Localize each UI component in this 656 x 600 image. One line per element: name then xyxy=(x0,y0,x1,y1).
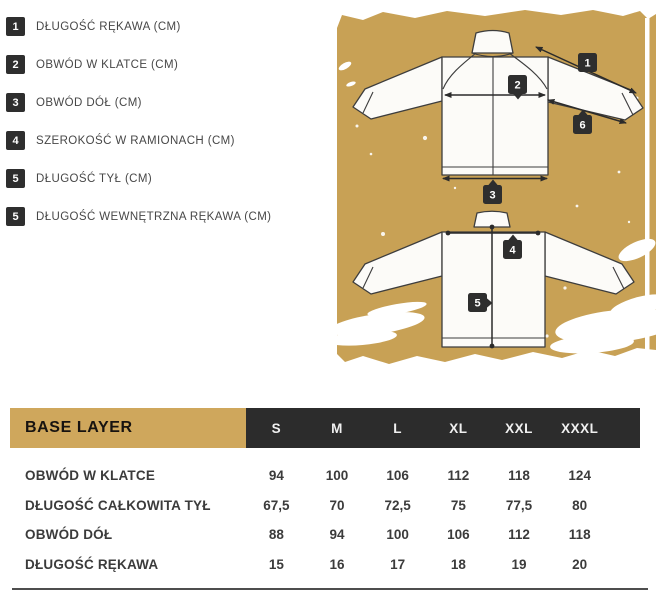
size-header-s: S xyxy=(246,421,307,436)
svg-text:5: 5 xyxy=(474,298,480,310)
legend-number-badge: 5 xyxy=(6,169,25,188)
legend-item-sleeve-length: 1 DŁUGOŚĆ RĘKAWA (CM) xyxy=(6,17,271,36)
cell-value: 77,5 xyxy=(489,498,550,513)
cell-value: 16 xyxy=(307,557,368,572)
grunge-scratch-line xyxy=(645,18,650,356)
legend-item-label: OBWÓD W KLATCE (CM) xyxy=(36,59,178,71)
cell-value: 15 xyxy=(246,557,307,572)
table-row-sleeve-length: DŁUGOŚĆ RĘKAWA 15 16 17 18 19 20 xyxy=(10,550,640,580)
legend-item-chest: 2 OBWÓD W KLATCE (CM) xyxy=(6,55,271,74)
size-header-xxl: XXL xyxy=(489,421,550,436)
cell-value: 118 xyxy=(549,527,610,542)
size-header-l: L xyxy=(367,421,428,436)
row-label: OBWÓD W KLATCE xyxy=(10,468,246,483)
legend-item-label: DŁUGOŚĆ TYŁ (CM) xyxy=(36,173,152,185)
cell-value: 70 xyxy=(307,498,368,513)
cell-value: 88 xyxy=(246,527,307,542)
cell-value: 17 xyxy=(367,557,428,572)
cell-value: 75 xyxy=(428,498,489,513)
legend-item-label: OBWÓD DÓŁ (CM) xyxy=(36,97,142,109)
legend-item-label: DŁUGOŚĆ WEWNĘTRZNA RĘKAWA (CM) xyxy=(36,211,271,223)
size-header-m: M xyxy=(307,421,368,436)
cell-value: 19 xyxy=(489,557,550,572)
size-table-title: BASE LAYER xyxy=(10,408,246,448)
size-header-xxxl: XXXL xyxy=(549,421,610,436)
cell-value: 124 xyxy=(549,468,610,483)
svg-text:4: 4 xyxy=(509,245,516,257)
cell-value: 94 xyxy=(246,468,307,483)
jacket-measurement-diagram: 1 2 6 3 xyxy=(337,6,656,372)
cell-value: 100 xyxy=(307,468,368,483)
row-label: DŁUGOŚĆ CAŁKOWITA TYŁ xyxy=(10,498,246,513)
cell-value: 112 xyxy=(428,468,489,483)
legend-number-badge: 5 xyxy=(6,207,25,226)
legend-item-label: SZEROKOŚĆ W RAMIONACH (CM) xyxy=(36,135,235,147)
table-bottom-divider xyxy=(12,588,648,590)
cell-value: 67,5 xyxy=(246,498,307,513)
size-table: BASE LAYER S M L XL XXL XXXL OBWÓD W KLA… xyxy=(10,408,640,579)
svg-text:1: 1 xyxy=(584,58,590,70)
cell-value: 18 xyxy=(428,557,489,572)
cell-value: 72,5 xyxy=(367,498,428,513)
size-header-xl: XL xyxy=(428,421,489,436)
legend-item-shoulder-width: 4 SZEROKOŚĆ W RAMIONACH (CM) xyxy=(6,131,271,150)
svg-text:6: 6 xyxy=(579,120,585,132)
svg-text:3: 3 xyxy=(489,190,495,202)
row-label: OBWÓD DÓŁ xyxy=(10,527,246,542)
cell-value: 106 xyxy=(428,527,489,542)
size-table-header: BASE LAYER S M L XL XXL XXXL xyxy=(10,408,640,448)
legend-item-label: DŁUGOŚĆ RĘKAWA (CM) xyxy=(36,21,181,33)
svg-text:2: 2 xyxy=(514,80,520,92)
legend-item-inner-sleeve: 5 DŁUGOŚĆ WEWNĘTRZNA RĘKAWA (CM) xyxy=(6,207,271,226)
size-column-headers: S M L XL XXL XXXL xyxy=(246,408,640,448)
size-table-body: OBWÓD W KLATCE 94 100 106 112 118 124 DŁ… xyxy=(10,448,640,579)
legend-number-badge: 2 xyxy=(6,55,25,74)
cell-value: 106 xyxy=(367,468,428,483)
cell-value: 20 xyxy=(549,557,610,572)
row-label: DŁUGOŚĆ RĘKAWA xyxy=(10,557,246,572)
table-row-total-back-length: DŁUGOŚĆ CAŁKOWITA TYŁ 67,5 70 72,5 75 77… xyxy=(10,491,640,521)
legend-item-bottom: 3 OBWÓD DÓŁ (CM) xyxy=(6,93,271,112)
cell-value: 112 xyxy=(489,527,550,542)
cell-value: 118 xyxy=(489,468,550,483)
legend-number-badge: 3 xyxy=(6,93,25,112)
legend-item-back-length: 5 DŁUGOŚĆ TYŁ (CM) xyxy=(6,169,271,188)
table-row-chest: OBWÓD W KLATCE 94 100 106 112 118 124 xyxy=(10,461,640,491)
cell-value: 80 xyxy=(549,498,610,513)
legend-number-badge: 4 xyxy=(6,131,25,150)
cell-value: 100 xyxy=(367,527,428,542)
marker-sleeve-length: 1 xyxy=(578,53,597,72)
measurement-legend: 1 DŁUGOŚĆ RĘKAWA (CM) 2 OBWÓD W KLATCE (… xyxy=(6,17,271,226)
legend-number-badge: 1 xyxy=(6,17,25,36)
cell-value: 94 xyxy=(307,527,368,542)
table-row-bottom: OBWÓD DÓŁ 88 94 100 106 112 118 xyxy=(10,520,640,550)
